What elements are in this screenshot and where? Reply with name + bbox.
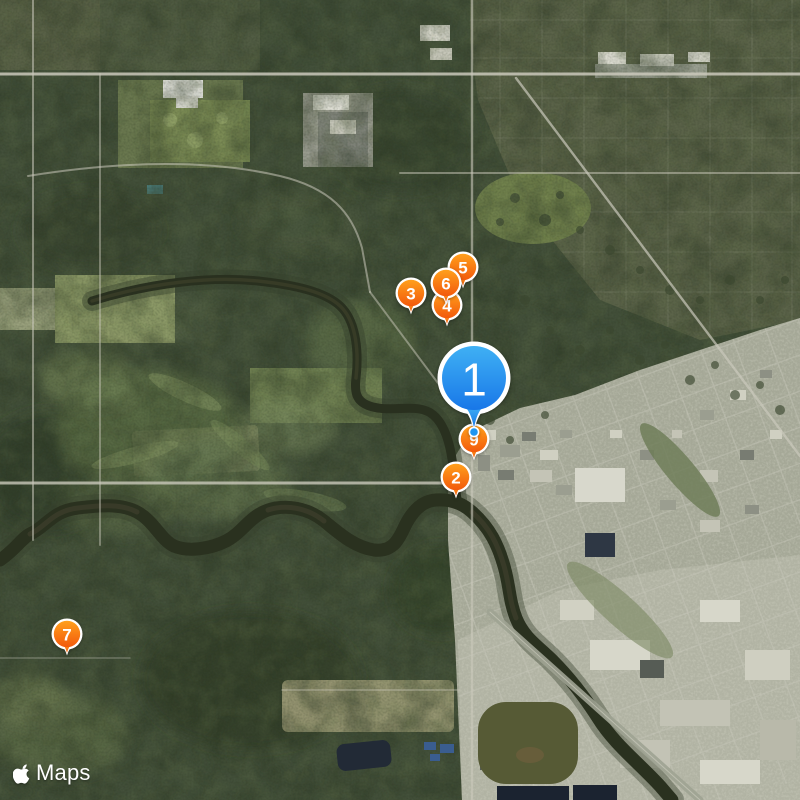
pin-number: 6 [441, 275, 450, 294]
satellite-map[interactable]: 3 5 4 6 2 7 9 [0, 0, 800, 800]
pin-number: 3 [406, 285, 415, 304]
satellite-imagery [0, 0, 800, 800]
pin-shape: 6 [424, 261, 468, 307]
pin-shape: 7 [45, 612, 89, 658]
map-attribution[interactable]: Maps [13, 760, 91, 786]
cluster-count: 1 [461, 354, 487, 406]
cluster-shape: 1 [430, 334, 518, 442]
cluster-anchor-dot [470, 428, 478, 436]
apple-logo-icon [13, 762, 32, 785]
pin-number: 2 [451, 469, 460, 488]
pin-number: 7 [62, 626, 71, 645]
attribution-brand-label: Maps [36, 760, 91, 786]
